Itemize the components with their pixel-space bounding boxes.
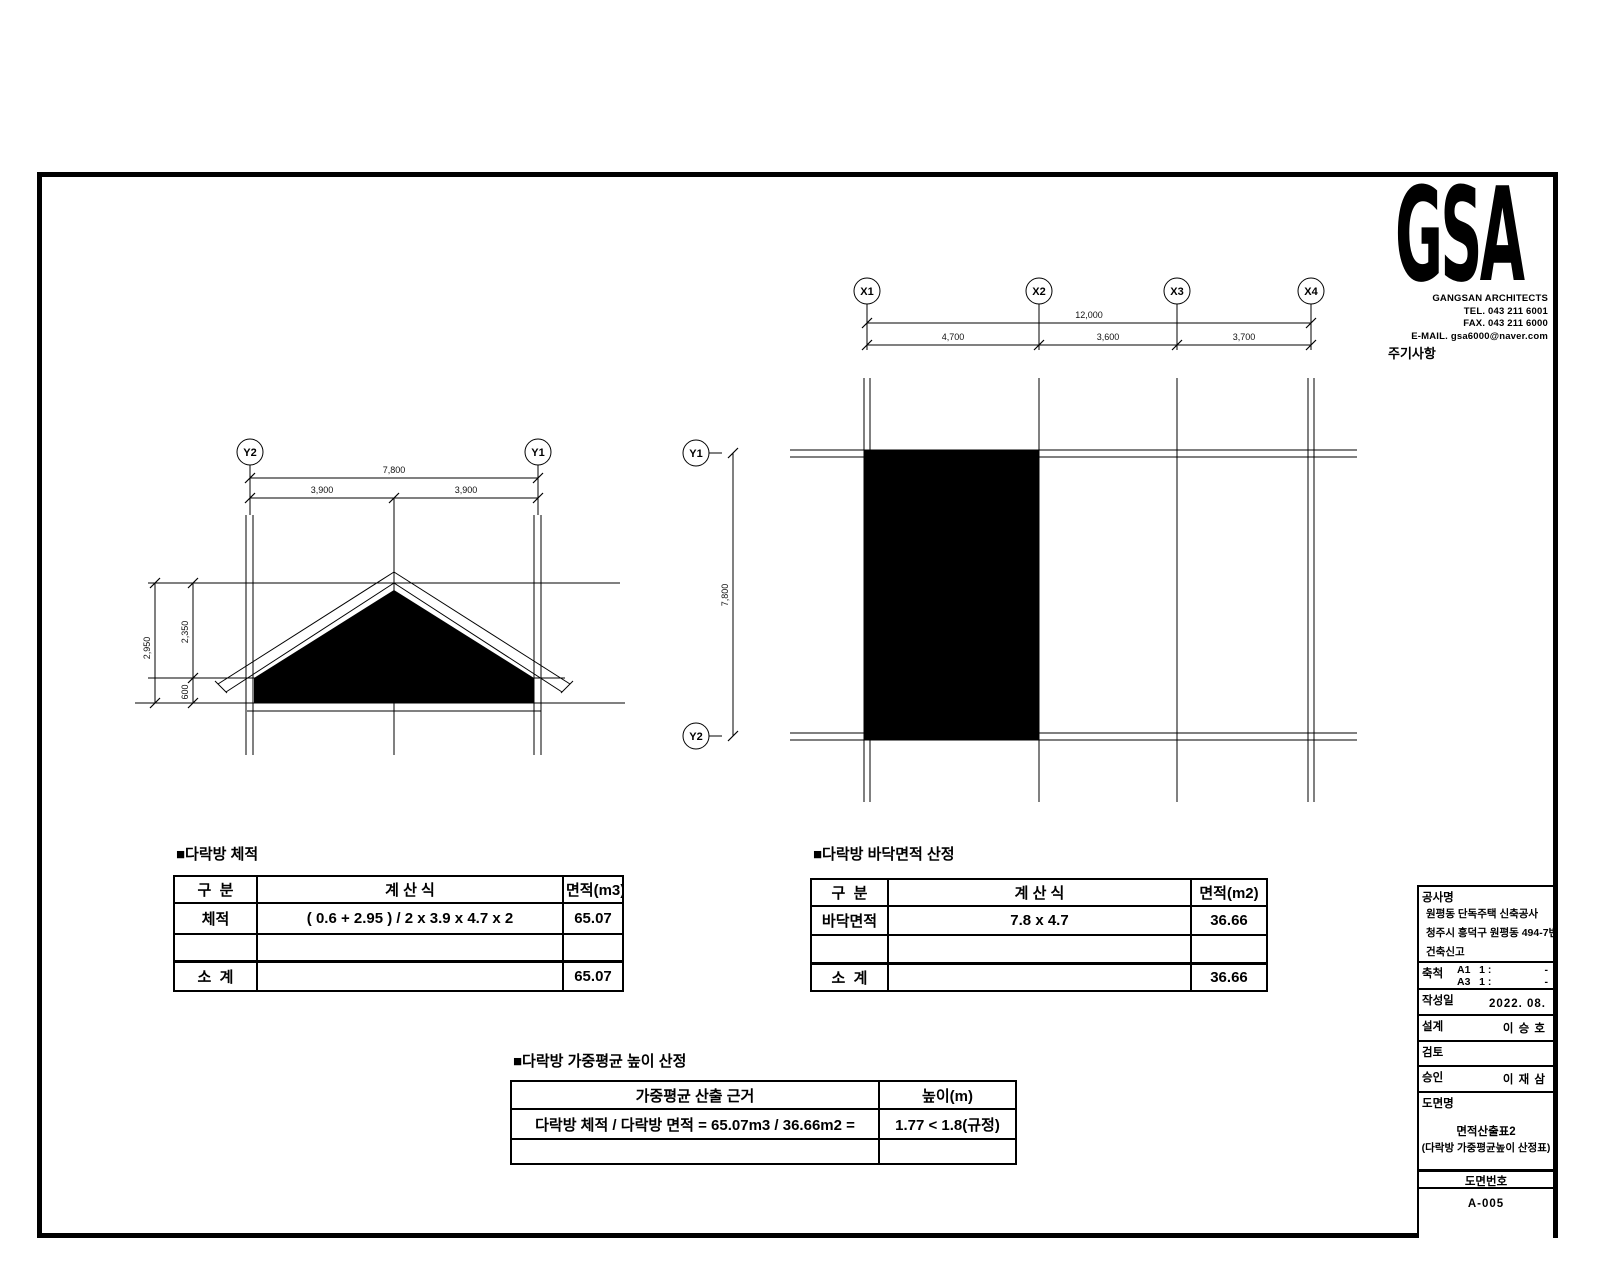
table-cell: 36.66 [1191, 906, 1267, 935]
table-cell [888, 935, 1191, 963]
approval-label: 승인 [1422, 1069, 1443, 1085]
grid-marker-x1: X1 [860, 286, 873, 298]
design-value: 이 승 호 [1503, 1020, 1546, 1036]
table-cell [257, 934, 563, 961]
scale-a1-value: - [1545, 964, 1549, 976]
floor-col-header: 면적(m2) [1191, 879, 1267, 906]
grid-marker-y1: Y1 [531, 447, 544, 459]
floor-area-table-title: ■다락방 바닥면적 산정 [813, 843, 955, 864]
table-cell [563, 934, 623, 961]
design-label: 설계 [1422, 1018, 1443, 1034]
plan-drawing: X1 X2 X3 X4 12,000 4,700 3,600 3,700 Y1 … [650, 255, 1370, 815]
table-cell [888, 963, 1191, 991]
project-line: 원평동 단독주택 신축공사 [1426, 905, 1553, 924]
project-line: 청주시 흥덕구 원평동 494-7번지 [1426, 924, 1553, 943]
avg-height-table: 가중평균 산출 근거 높이(m) 다락방 체적 / 다락방 면적 = 65.07… [510, 1080, 1017, 1165]
table-cell: 65.07 [563, 961, 623, 991]
approval-value: 이 재 삼 [1503, 1071, 1546, 1087]
drawing-no-value: A-005 [1419, 1198, 1553, 1210]
grid-marker-x2: X2 [1032, 286, 1045, 298]
table-cell [879, 1139, 1016, 1164]
gsa-logo-text: GSA [1395, 186, 1472, 284]
dim-elev-total: 7,800 [383, 465, 406, 475]
avg-height-table-title: ■다락방 가중평균 높이 산정 [513, 1050, 686, 1071]
dim-elev-height-total: 2,950 [142, 637, 152, 660]
dim-elev-height-lower: 600 [180, 684, 190, 699]
table-cell: 다락방 체적 / 다락방 면적 = 65.07m3 / 36.66m2 = [511, 1109, 879, 1139]
table-cell [174, 934, 257, 961]
title-block-scale-row: 축척 A1 1 : - A3 1 : - [1419, 963, 1553, 990]
title-block-drawing-title-row: 도면명 면적산출표2 (다락방 가중평균높이 산정표) [1419, 1093, 1553, 1171]
dim-plan-total: 12,000 [1075, 310, 1103, 320]
avg-height-col-header: 가중평균 산출 근거 [511, 1081, 879, 1109]
table-cell [511, 1139, 879, 1164]
scale-a3: A3 1 : [1457, 976, 1491, 988]
grid-marker-x4: X4 [1304, 286, 1318, 298]
floor-col-header: 구 분 [811, 879, 888, 906]
grid-marker-y2: Y2 [243, 447, 256, 459]
table-cell: 소 계 [174, 961, 257, 991]
table-cell: 체적 [174, 903, 257, 934]
grid-marker-plan-y1: Y1 [689, 448, 702, 460]
scale-a1: A1 1 : [1457, 964, 1491, 976]
drawing-no-label: 도면번호 [1419, 1173, 1553, 1189]
dim-plan-vertical: 7,800 [720, 584, 730, 607]
dim-elev-height-upper: 2,350 [180, 621, 190, 644]
review-label: 검토 [1422, 1044, 1443, 1060]
date-label: 작성일 [1422, 992, 1454, 1008]
table-cell: 바닥면적 [811, 906, 888, 935]
project-label: 공사명 [1422, 889, 1454, 905]
table-cell [257, 961, 563, 991]
table-cell: 65.07 [563, 903, 623, 934]
floor-area-table: 구 분 계 산 식 면적(m2) 바닥면적 7.8 x 4.7 36.66 소 … [810, 878, 1268, 992]
dim-plan-seg3: 3,700 [1233, 332, 1256, 342]
volume-col-header: 구 분 [174, 876, 257, 903]
avg-height-col-header: 높이(m) [879, 1081, 1016, 1109]
drawing-title-label: 도면명 [1422, 1095, 1454, 1111]
table-cell [1191, 935, 1267, 963]
table-cell: 소 계 [811, 963, 888, 991]
drawing-title-line2: (다락방 가중평균높이 산정표) [1419, 1140, 1553, 1155]
dim-elev-seg1: 3,900 [311, 485, 334, 495]
elevation-drawing: Y2 Y1 7,800 3,900 3,900 2,950 2,350 600 [130, 420, 640, 770]
title-block-drawing-no-row: A-005 [1419, 1189, 1553, 1222]
title-block-date-row: 작성일 2022. 08. [1419, 990, 1553, 1016]
attic-floor-fill [864, 450, 1039, 740]
title-block-project-row: 공사명 원평동 단독주택 신축공사 청주시 흥덕구 원평동 494-7번지 건축… [1419, 887, 1553, 963]
table-cell: ( 0.6 + 2.95 ) / 2 x 3.9 x 4.7 x 2 [257, 903, 563, 934]
drawing-title-line1: 면적산출표2 [1419, 1123, 1553, 1139]
volume-table-title: ■다락방 체적 [176, 843, 258, 864]
floor-col-header: 계 산 식 [888, 879, 1191, 906]
dim-elev-seg2: 3,900 [455, 485, 478, 495]
volume-col-header: 면적(m3) [563, 876, 623, 903]
dim-plan-seg1: 4,700 [942, 332, 965, 342]
date-value: 2022. 08. [1489, 998, 1546, 1010]
grid-marker-x3: X3 [1170, 286, 1183, 298]
volume-col-header: 계 산 식 [257, 876, 563, 903]
title-block-design-row: 설계 이 승 호 [1419, 1016, 1553, 1042]
table-cell: 7.8 x 4.7 [888, 906, 1191, 935]
title-block-drawing-no-header: 도면번호 [1419, 1171, 1553, 1189]
title-block: 공사명 원평동 단독주택 신축공사 청주시 흥덕구 원평동 494-7번지 건축… [1417, 885, 1553, 1238]
scale-a3-value: - [1545, 976, 1549, 988]
gsa-logo: GSA [1395, 186, 1565, 291]
title-block-review-row: 검토 [1419, 1042, 1553, 1067]
scale-label: 축척 [1422, 965, 1443, 981]
table-cell: 36.66 [1191, 963, 1267, 991]
table-cell [811, 935, 888, 963]
title-block-approval-row: 승인 이 재 삼 [1419, 1067, 1553, 1093]
project-line: 건축신고 [1426, 943, 1553, 962]
grid-marker-plan-y2: Y2 [689, 731, 702, 743]
dim-plan-seg2: 3,600 [1097, 332, 1120, 342]
table-cell: 1.77 < 1.8(규정) [879, 1109, 1016, 1139]
notes-label: 주기사항 [1388, 343, 1436, 362]
volume-table: 구 분 계 산 식 면적(m3) 체적 ( 0.6 + 2.95 ) / 2 x… [173, 875, 624, 992]
